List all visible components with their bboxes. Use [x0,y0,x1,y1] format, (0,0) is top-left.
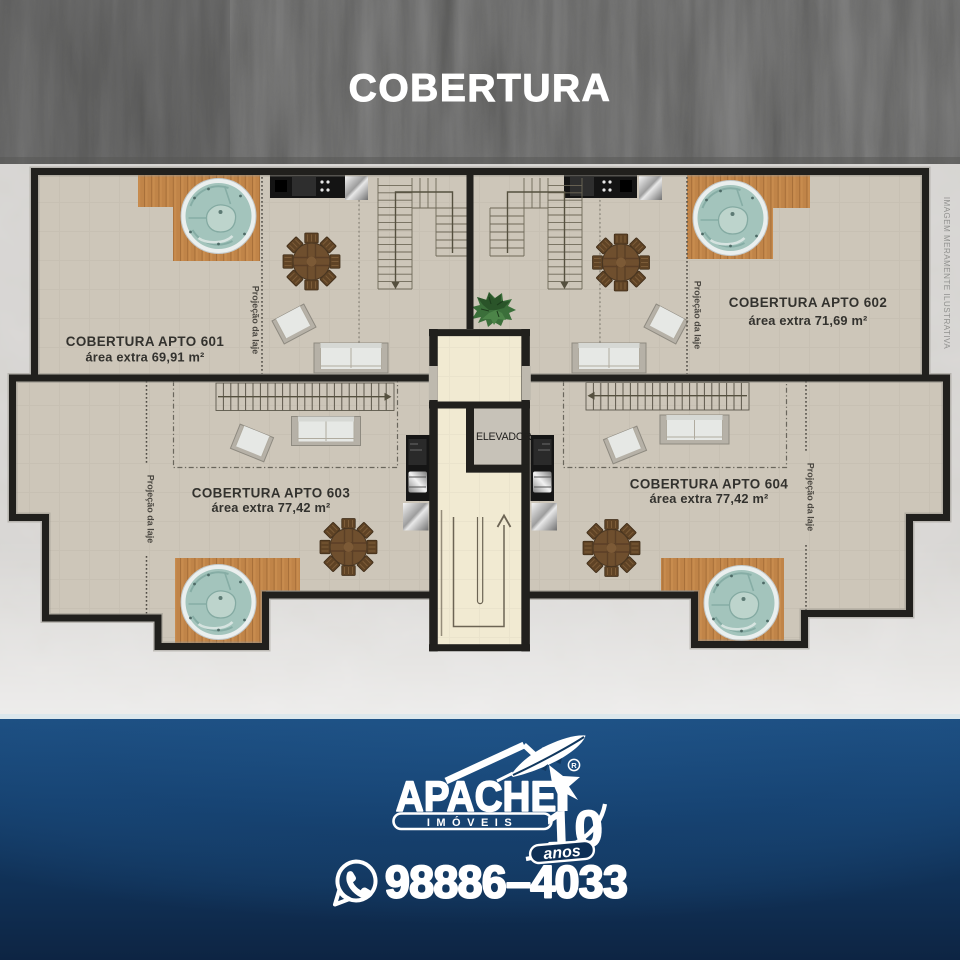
svg-text:IMAGEM MERAMENTE ILUSTRATIVA: IMAGEM MERAMENTE ILUSTRATIVA [942,197,951,350]
svg-text:COBERTURA APTO 604: COBERTURA APTO 604 [630,477,789,492]
svg-text:Projeção da laje: Projeção da laje [806,463,816,532]
svg-text:IMÓVEIS: IMÓVEIS [427,816,518,829]
svg-text:ELEVADOR: ELEVADOR [476,431,532,443]
svg-text:98886–4033: 98886–4033 [385,857,627,908]
svg-text:COBERTURA: COBERTURA [349,67,612,110]
svg-text:R: R [571,761,577,770]
svg-text:COBERTURA APTO 603: COBERTURA APTO 603 [192,486,351,501]
svg-text:Projeção da laje: Projeção da laje [693,281,703,350]
svg-text:Projeção da laje: Projeção da laje [251,286,261,355]
svg-text:área extra 71,69 m²: área extra 71,69 m² [748,313,867,328]
svg-text:área extra 69,91 m²: área extra 69,91 m² [85,350,204,365]
svg-text:área extra 77,42 m²: área extra 77,42 m² [649,491,768,506]
svg-text:área extra 77,42 m²: área extra 77,42 m² [211,500,330,515]
svg-text:COBERTURA APTO 601: COBERTURA APTO 601 [66,334,225,349]
svg-text:Projeção da laje: Projeção da laje [146,475,156,544]
svg-text:COBERTURA APTO 602: COBERTURA APTO 602 [729,295,888,310]
